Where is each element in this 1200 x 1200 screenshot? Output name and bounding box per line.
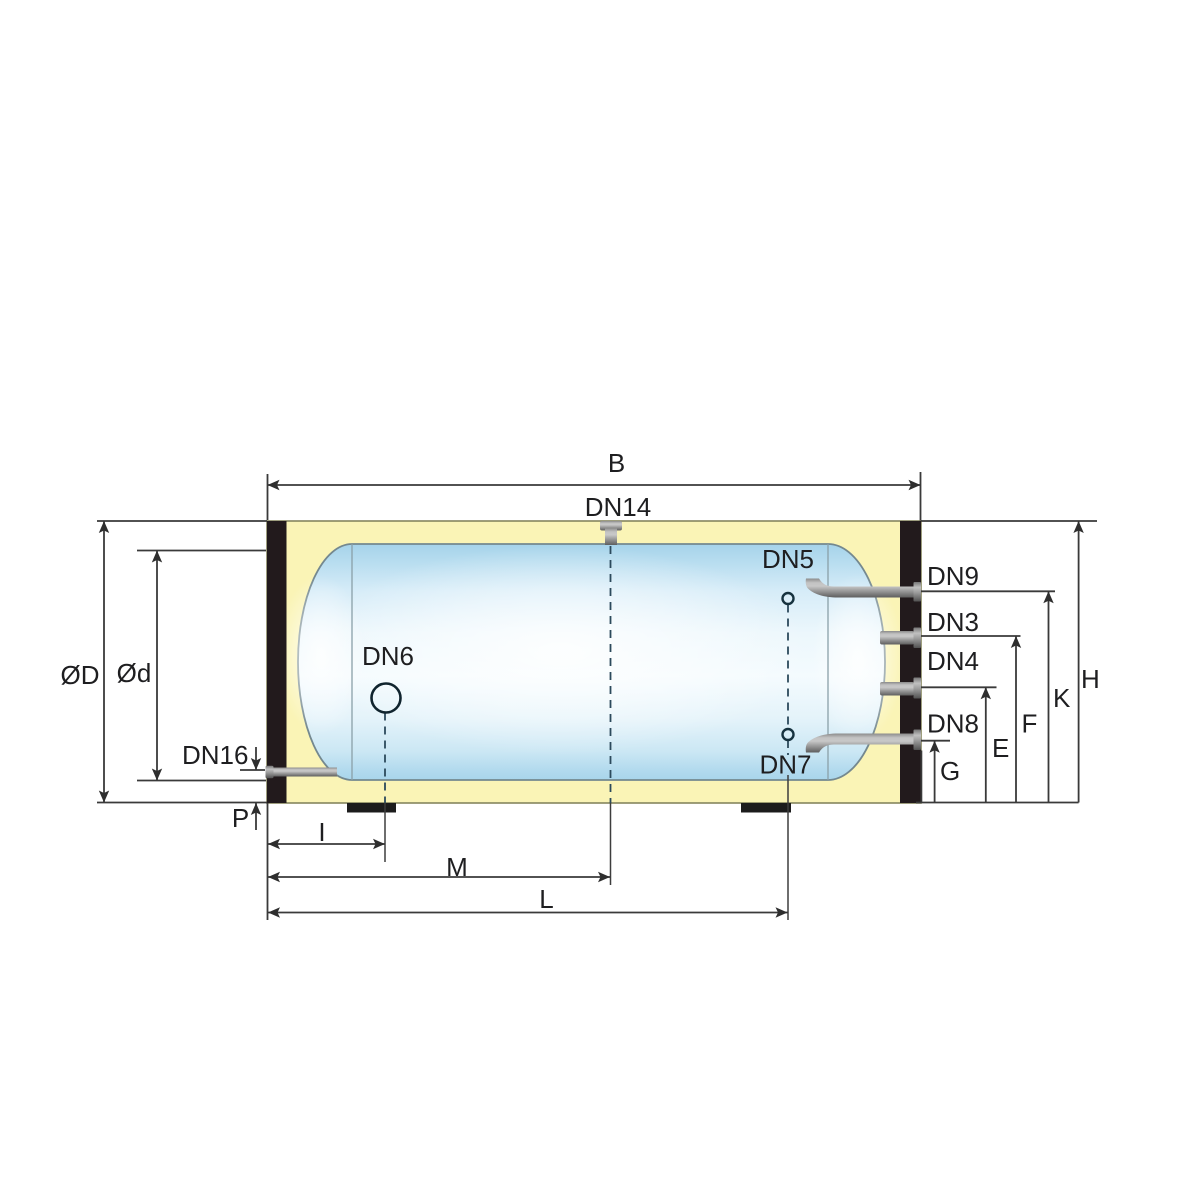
svg-text:E: E [992, 733, 1009, 763]
svg-text:K: K [1053, 683, 1071, 713]
svg-text:L: L [539, 884, 553, 914]
svg-text:F: F [1022, 709, 1038, 739]
svg-text:M: M [446, 852, 468, 882]
svg-text:DN14: DN14 [585, 492, 651, 522]
svg-text:DN9: DN9 [927, 561, 979, 591]
svg-text:DN3: DN3 [927, 607, 979, 637]
svg-text:I: I [318, 817, 325, 847]
svg-text:DN4: DN4 [927, 646, 979, 676]
svg-text:Ød: Ød [117, 658, 152, 688]
svg-text:DN16: DN16 [182, 740, 248, 770]
svg-text:DN7: DN7 [759, 750, 811, 780]
svg-text:G: G [940, 756, 960, 786]
svg-text:H: H [1081, 664, 1100, 694]
svg-text:P: P [232, 803, 249, 833]
svg-text:DN5: DN5 [762, 544, 814, 574]
svg-text:DN6: DN6 [362, 641, 414, 671]
svg-text:DN8: DN8 [927, 709, 979, 739]
svg-text:ØD: ØD [61, 660, 100, 690]
svg-text:B: B [608, 448, 625, 478]
